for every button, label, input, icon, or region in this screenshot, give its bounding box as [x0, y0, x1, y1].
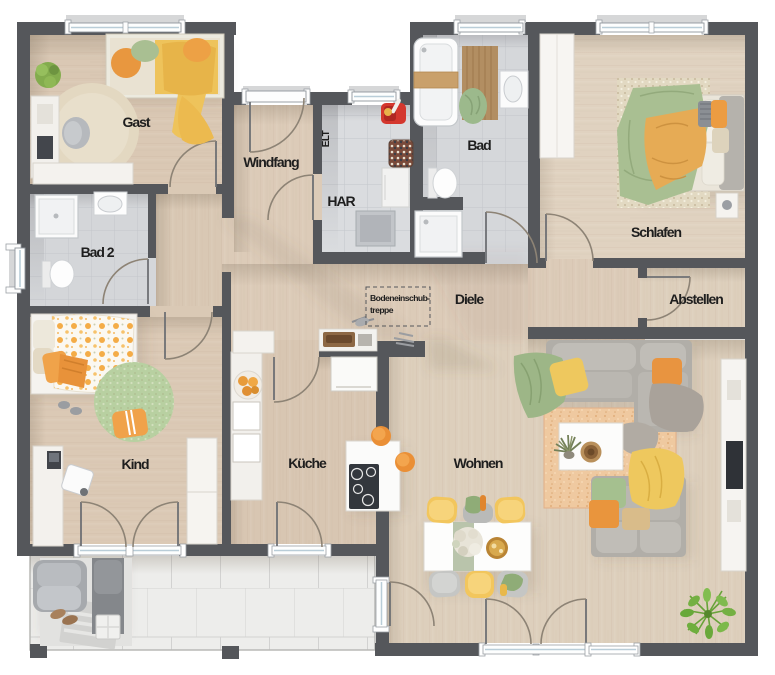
svg-text:ELT: ELT: [321, 130, 332, 147]
svg-text:Wohnen: Wohnen: [454, 455, 503, 471]
svg-text:Windfang: Windfang: [243, 154, 299, 170]
svg-text:Diele: Diele: [455, 291, 484, 307]
svg-text:Abstellen: Abstellen: [669, 291, 723, 307]
svg-text:HAR: HAR: [327, 193, 355, 209]
svg-text:treppe: treppe: [370, 305, 394, 315]
svg-text:Schlafen: Schlafen: [631, 224, 681, 240]
svg-text:Küche: Küche: [288, 455, 327, 471]
svg-text:Gast: Gast: [123, 114, 151, 130]
svg-text:Bad 2: Bad 2: [81, 244, 115, 260]
svg-text:Kind: Kind: [122, 456, 149, 472]
svg-text:Bad: Bad: [467, 137, 491, 153]
svg-text:Bodeneinschub-: Bodeneinschub-: [370, 293, 430, 303]
